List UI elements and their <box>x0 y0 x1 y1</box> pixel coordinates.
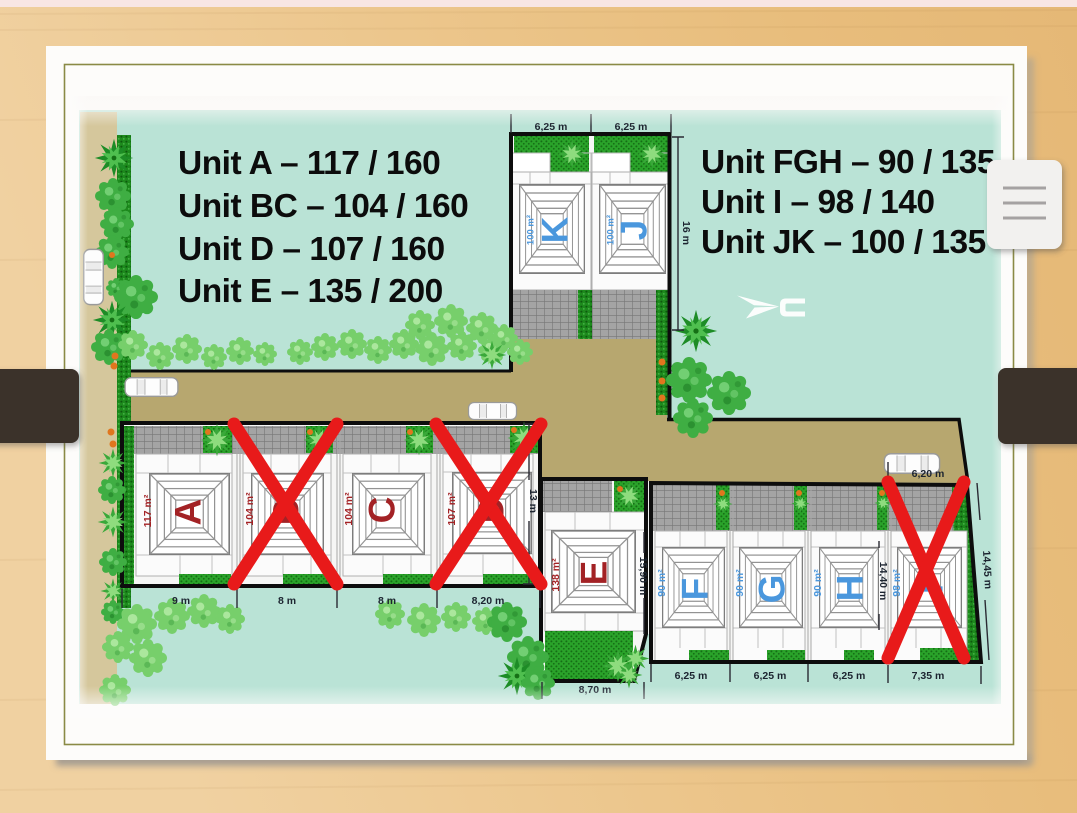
svg-text:14,40 m: 14,40 m <box>877 562 889 601</box>
svg-text:138 m²: 138 m² <box>550 558 562 592</box>
svg-text:90 m²: 90 m² <box>812 569 824 597</box>
svg-text:90 m²: 90 m² <box>656 569 668 597</box>
svg-text:9 m: 9 m <box>172 595 190 607</box>
svg-text:100 m²: 100 m² <box>526 215 537 245</box>
svg-text:98 m²: 98 m² <box>891 569 903 597</box>
svg-text:6,20 m: 6,20 m <box>912 468 945 480</box>
svg-text:Unit FGH – 90 / 135: Unit FGH – 90 / 135 <box>701 144 995 181</box>
svg-text:90 m²: 90 m² <box>734 569 746 597</box>
svg-text:107 m²: 107 m² <box>446 492 458 526</box>
svg-text:Unit I – 98 / 140: Unit I – 98 / 140 <box>701 184 935 221</box>
svg-text:13 m: 13 m <box>527 489 539 513</box>
svg-text:C: C <box>362 497 403 524</box>
svg-text:Unit BC – 104 / 160: Unit BC – 104 / 160 <box>178 188 468 225</box>
svg-text:104 m²: 104 m² <box>343 492 355 526</box>
svg-text:A: A <box>168 499 209 526</box>
svg-text:Unit E – 135 / 200: Unit E – 135 / 200 <box>178 273 443 310</box>
svg-text:8,20 m: 8,20 m <box>472 595 505 607</box>
svg-text:F: F <box>675 578 716 601</box>
svg-text:H: H <box>830 575 871 602</box>
svg-text:104 m²: 104 m² <box>244 492 256 526</box>
svg-text:K: K <box>535 216 576 243</box>
svg-text:6,25 m: 6,25 m <box>675 670 708 682</box>
svg-text:Unit D – 107 / 160: Unit D – 107 / 160 <box>178 231 445 268</box>
svg-text:15,90 m: 15,90 m <box>637 557 649 596</box>
svg-text:8 m: 8 m <box>378 595 396 607</box>
svg-text:14,45 m: 14,45 m <box>980 550 994 589</box>
svg-text:16 m: 16 m <box>680 221 692 245</box>
svg-text:G: G <box>752 575 793 604</box>
svg-text:8 m: 8 m <box>278 595 296 607</box>
svg-text:7,35 m: 7,35 m <box>912 670 945 682</box>
svg-text:Unit JK – 100 / 135: Unit JK – 100 / 135 <box>701 224 986 261</box>
svg-text:117 m²: 117 m² <box>142 494 154 527</box>
svg-text:100 m²: 100 m² <box>606 215 617 245</box>
svg-text:J: J <box>614 220 655 241</box>
svg-text:Unit A – 117 / 160: Unit A – 117 / 160 <box>178 145 440 182</box>
svg-text:6,25 m: 6,25 m <box>833 670 866 682</box>
svg-text:6,25 m: 6,25 m <box>754 670 787 682</box>
svg-text:E: E <box>574 561 615 586</box>
